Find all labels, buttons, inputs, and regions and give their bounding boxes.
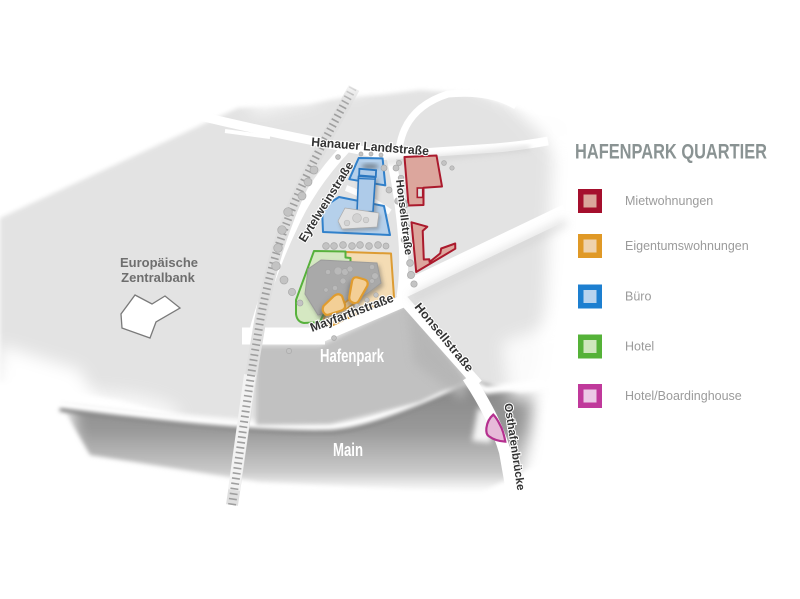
- svg-text:Main: Main: [333, 440, 363, 460]
- svg-text:Europäische: Europäische: [120, 255, 198, 270]
- svg-text:Büro: Büro: [625, 290, 651, 304]
- svg-text:Eigentumswohnungen: Eigentumswohnungen: [625, 239, 749, 253]
- svg-text:Hotel: Hotel: [625, 340, 654, 354]
- svg-text:Hafenpark: Hafenpark: [320, 346, 385, 366]
- svg-text:Hotel/Boardinghouse: Hotel/Boardinghouse: [625, 389, 742, 403]
- svg-text:HAFENPARK QUARTIER: HAFENPARK QUARTIER: [575, 141, 767, 164]
- svg-text:Zentralbank: Zentralbank: [121, 270, 195, 285]
- svg-text:Mietwohnungen: Mietwohnungen: [625, 194, 713, 208]
